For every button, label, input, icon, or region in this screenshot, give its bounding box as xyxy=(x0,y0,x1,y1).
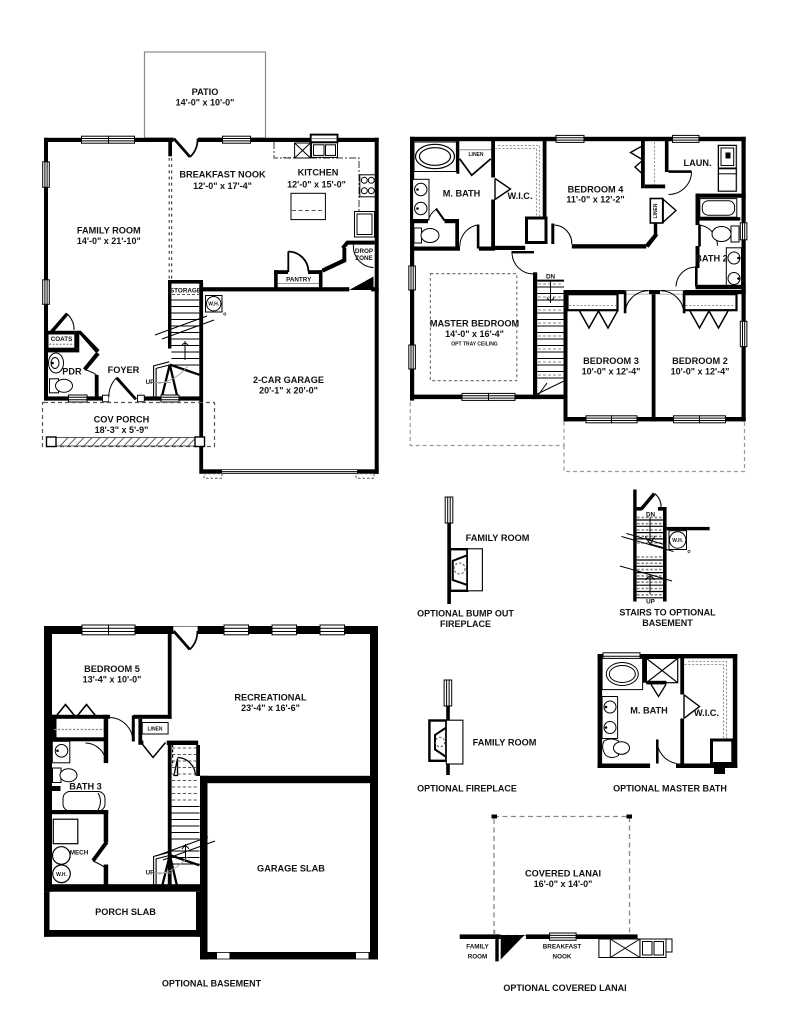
svg-text:DN: DN xyxy=(546,274,556,281)
svg-text:PDR: PDR xyxy=(62,367,82,377)
svg-text:BEDROOM 3: BEDROOM 3 xyxy=(583,356,639,366)
svg-text:COATS: COATS xyxy=(51,336,73,343)
svg-text:20'-1" x 20'-0": 20'-1" x 20'-0" xyxy=(259,386,318,396)
svg-text:UP: UP xyxy=(146,870,155,877)
svg-text:14'-0" x 10'-0": 14'-0" x 10'-0" xyxy=(176,98,235,108)
svg-text:FAMILY: FAMILY xyxy=(466,944,489,951)
svg-text:BEDROOM 5: BEDROOM 5 xyxy=(84,664,140,674)
svg-text:UP: UP xyxy=(646,599,655,606)
svg-text:OPTIONAL BASEMENT: OPTIONAL BASEMENT xyxy=(162,979,262,989)
svg-text:23'-4" x 16'-6": 23'-4" x 16'-6" xyxy=(241,703,300,713)
svg-text:MECH: MECH xyxy=(70,850,89,857)
svg-text:16'-0" x 14'-0": 16'-0" x 14'-0" xyxy=(534,879,593,889)
svg-text:14'-0" x 16'-4": 14'-0" x 16'-4" xyxy=(445,329,504,339)
svg-text:2-CAR GARAGE: 2-CAR GARAGE xyxy=(253,375,324,385)
svg-text:NOOK: NOOK xyxy=(553,954,572,961)
svg-text:PORCH SLAB: PORCH SLAB xyxy=(95,907,156,917)
svg-text:OPT TRAY CEILING: OPT TRAY CEILING xyxy=(451,342,498,348)
svg-text:18'-3" x 5'-9": 18'-3" x 5'-9" xyxy=(95,425,149,435)
svg-text:OPTIONAL COVERED LANAI: OPTIONAL COVERED LANAI xyxy=(503,983,626,993)
svg-text:LINEN: LINEN xyxy=(653,203,659,218)
svg-text:PANTRY: PANTRY xyxy=(286,276,312,283)
svg-text:STAIRS TO OPTIONAL: STAIRS TO OPTIONAL xyxy=(619,608,716,618)
svg-text:M. BATH: M. BATH xyxy=(443,189,481,199)
svg-text:MASTER BEDROOM: MASTER BEDROOM xyxy=(430,319,520,329)
svg-text:BATH 3: BATH 3 xyxy=(69,782,102,792)
svg-text:FIREPLACE: FIREPLACE xyxy=(440,619,491,629)
svg-text:FAMILY ROOM: FAMILY ROOM xyxy=(466,533,530,543)
svg-text:KITCHEN: KITCHEN xyxy=(298,168,339,178)
svg-text:RECREATIONAL: RECREATIONAL xyxy=(234,693,307,703)
svg-text:W.H.: W.H. xyxy=(672,538,683,544)
svg-text:BREAKFAST: BREAKFAST xyxy=(543,944,582,951)
svg-text:DROP: DROP xyxy=(355,248,373,255)
svg-text:W.I.C.: W.I.C. xyxy=(507,191,532,201)
svg-text:W.H.: W.H. xyxy=(56,872,67,878)
svg-text:GARAGE SLAB: GARAGE SLAB xyxy=(257,864,325,874)
svg-text:12'-0" x 17'-4": 12'-0" x 17'-4" xyxy=(193,181,252,191)
svg-text:OPTIONAL BUMP OUT: OPTIONAL BUMP OUT xyxy=(417,609,514,619)
svg-text:11'-0" x 12'-2": 11'-0" x 12'-2" xyxy=(566,195,624,205)
svg-text:12'-0" x 15'-0": 12'-0" x 15'-0" xyxy=(287,180,346,190)
svg-text:PATIO: PATIO xyxy=(192,87,219,97)
svg-text:STORAGE: STORAGE xyxy=(170,288,201,295)
svg-text:BATH 2: BATH 2 xyxy=(695,254,728,264)
svg-text:13'-4" x 10'-0": 13'-4" x 10'-0" xyxy=(83,675,142,685)
svg-text:10'-0" x 12'-4": 10'-0" x 12'-4" xyxy=(582,367,641,377)
svg-text:BEDROOM 2: BEDROOM 2 xyxy=(672,356,728,366)
svg-text:COV PORCH: COV PORCH xyxy=(94,414,150,424)
svg-text:FAMILY ROOM: FAMILY ROOM xyxy=(473,738,537,748)
svg-text:W.I.C.: W.I.C. xyxy=(694,708,719,718)
svg-text:14'-0" x 21'-10": 14'-0" x 21'-10" xyxy=(77,236,141,246)
svg-text:OPTIONAL FIREPLACE: OPTIONAL FIREPLACE xyxy=(417,784,517,794)
svg-text:FAMILY ROOM: FAMILY ROOM xyxy=(77,226,141,236)
svg-text:FOYER: FOYER xyxy=(108,365,140,375)
svg-text:OPTIONAL MASTER BATH: OPTIONAL MASTER BATH xyxy=(613,784,727,794)
svg-text:BASEMENT: BASEMENT xyxy=(642,618,693,628)
svg-text:LINEN: LINEN xyxy=(148,727,163,733)
svg-text:BEDROOM 4: BEDROOM 4 xyxy=(568,185,625,195)
svg-text:LAUN.: LAUN. xyxy=(683,158,711,168)
svg-text:ZONE: ZONE xyxy=(355,255,373,262)
svg-text:ROOM: ROOM xyxy=(468,954,488,961)
svg-text:M. BATH: M. BATH xyxy=(630,706,668,716)
svg-text:W.H.: W.H. xyxy=(208,302,219,308)
svg-text:COVERED LANAI: COVERED LANAI xyxy=(525,869,601,879)
svg-text:BREAKFAST NOOK: BREAKFAST NOOK xyxy=(179,170,266,180)
svg-text:LINEN: LINEN xyxy=(469,152,484,158)
svg-text:UP: UP xyxy=(146,379,155,386)
svg-text:10'-0" x 12'-4": 10'-0" x 12'-4" xyxy=(671,367,730,377)
